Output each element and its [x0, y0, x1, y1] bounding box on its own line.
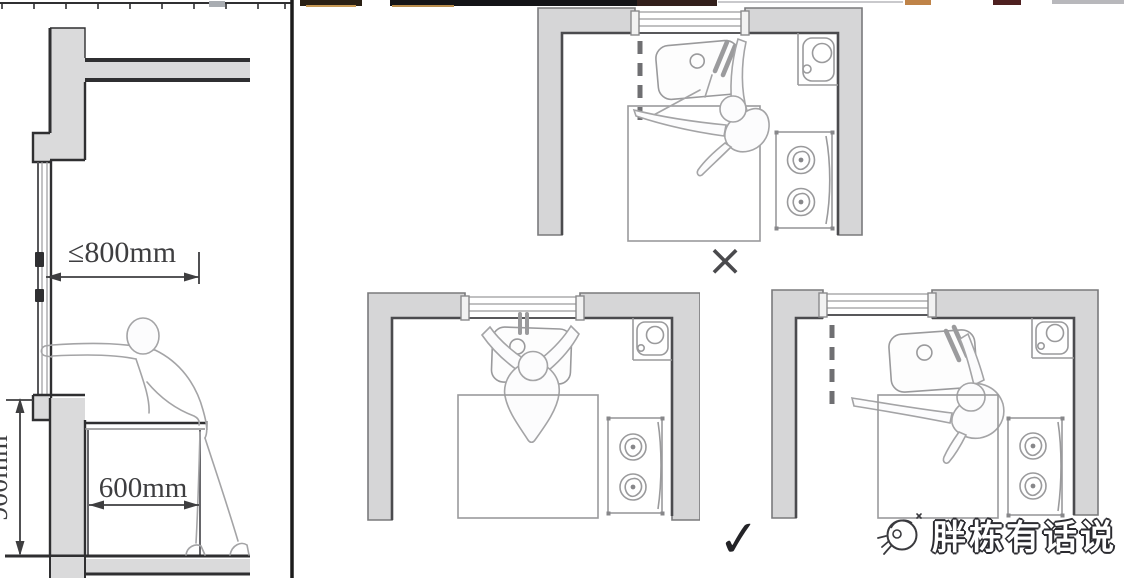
burner — [1020, 433, 1046, 459]
wrong-mark: × — [702, 238, 748, 284]
logo-text: 胖栋有话说 — [932, 510, 1117, 559]
window-lock — [35, 289, 44, 302]
section-elevation-drawing: ≤800mm 600mm 900mm — [0, 0, 296, 584]
person-head — [720, 96, 746, 122]
stove — [775, 131, 835, 231]
burner — [788, 189, 815, 216]
kitchen-window-guideline-figure: ≤800mm 600mm 900mm — [0, 0, 1124, 584]
check-mark: ✓ — [710, 510, 768, 568]
dimension-counter-600: 600mm — [89, 472, 199, 510]
cropped-banner-fragment — [905, 0, 931, 5]
window-plan — [461, 296, 584, 320]
corner-water-heater — [633, 318, 672, 360]
dim-800-label: ≤800mm — [68, 236, 176, 269]
burner — [788, 147, 815, 174]
cropped-banner-fragment — [1052, 0, 1124, 4]
wall-and-slab — [33, 28, 250, 162]
burner — [1020, 473, 1046, 499]
floor-plan-bottom-left-right — [365, 288, 700, 533]
stove — [1007, 417, 1065, 518]
window-plan — [631, 11, 749, 35]
corner-water-heater — [1032, 318, 1074, 358]
floor-plan-top-wrong — [535, 5, 875, 245]
cropped-banner-fragment — [306, 5, 356, 7]
window-handle — [35, 252, 44, 267]
person-head — [519, 352, 548, 381]
window-section — [35, 160, 51, 398]
floor-plan-bottom-right-right — [770, 285, 1110, 540]
dim-600-label: 600mm — [99, 472, 188, 504]
dim-900-label: 900mm — [0, 435, 14, 521]
window-plan — [819, 293, 936, 317]
sketch-mascot-icon — [872, 506, 926, 562]
watermark-logo: 胖栋有话说 — [872, 504, 1122, 564]
dimension-sill-900: 900mm — [0, 398, 33, 556]
corner-water-heater — [798, 33, 838, 85]
cropped-ruler — [0, 1, 291, 9]
dimension-reach-800: ≤800mm — [46, 236, 199, 284]
floor-slab — [5, 556, 250, 578]
sill-and-lower-wall — [33, 395, 85, 556]
cropped-banner-fragment — [993, 0, 1021, 5]
cropped-banner-fragment — [718, 1, 903, 3]
person-head — [957, 383, 985, 411]
stove — [607, 417, 665, 516]
burner — [620, 474, 646, 500]
cropped-banner-fragment — [392, 5, 454, 7]
burner — [620, 434, 646, 460]
